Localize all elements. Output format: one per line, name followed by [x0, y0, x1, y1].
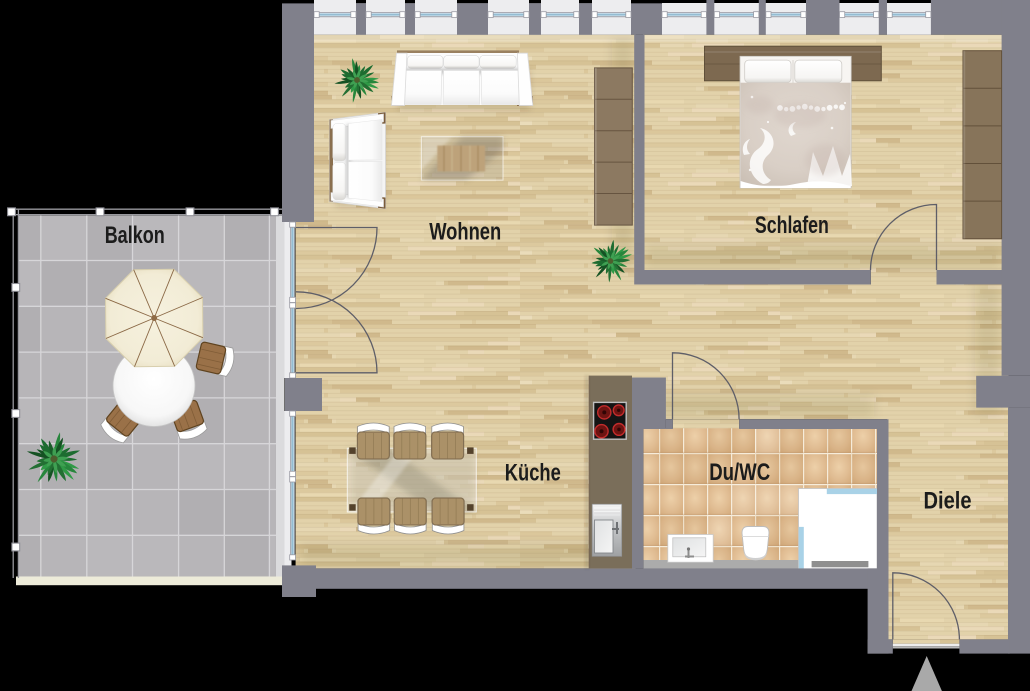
svg-text:Diele: Diele — [924, 488, 972, 515]
svg-text:Küche: Küche — [505, 459, 561, 486]
svg-text:Du/WC: Du/WC — [709, 459, 770, 486]
svg-text:Schlafen: Schlafen — [755, 212, 829, 239]
svg-text:Balkon: Balkon — [105, 222, 165, 249]
svg-text:Wohnen: Wohnen — [429, 218, 501, 245]
